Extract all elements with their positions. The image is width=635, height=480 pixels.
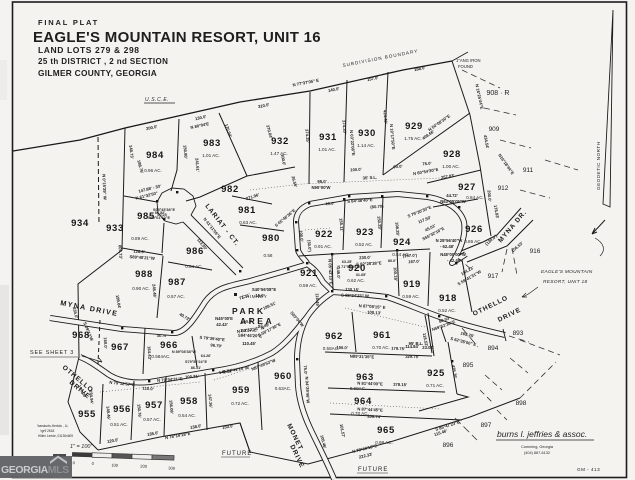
svg-text:N63°05'05"W: N63°05'05"W — [440, 199, 466, 204]
svg-text:S70°01'10"E: S70°01'10"E — [148, 216, 170, 220]
svg-text:0.96 AC.: 0.96 AC. — [144, 168, 162, 173]
svg-text:SEE SHEET 3: SEE SHEET 3 — [30, 350, 74, 356]
svg-text:0.91 AC.: 0.91 AC. — [314, 244, 332, 249]
svg-text:(404) 887-6132: (404) 887-6132 — [524, 451, 550, 455]
svg-text:1.01 AC.: 1.01 AC. — [202, 153, 220, 158]
svg-text:95.0': 95.0' — [317, 179, 326, 184]
svg-text:0.54 AC.: 0.54 AC. — [178, 413, 196, 418]
svg-text:0.52 AC.: 0.52 AC. — [438, 308, 456, 313]
svg-text:200: 200 — [140, 463, 148, 468]
svg-text:929: 929 — [405, 121, 423, 132]
svg-text:0.63 AC.: 0.63 AC. — [239, 220, 257, 225]
svg-text:933: 933 — [106, 223, 124, 234]
svg-text:EAGLE'S MOUNTAIN RESORT, UNIT: EAGLE'S MOUNTAIN RESORT, UNIT 16 — [33, 29, 321, 46]
svg-text:200.0': 200.0' — [487, 190, 493, 202]
svg-text:36.79': 36.79' — [157, 334, 168, 338]
svg-text:0.89 AC.: 0.89 AC. — [131, 236, 149, 241]
svg-text:0.54 AC.: 0.54 AC. — [185, 264, 203, 269]
svg-text:0.57 AC.: 0.57 AC. — [143, 417, 161, 422]
svg-text:0.57 AC.: 0.57 AC. — [167, 294, 185, 299]
svg-text:PARK: PARK — [232, 306, 265, 316]
svg-text:919: 919 — [403, 279, 421, 290]
svg-text:100.19': 100.19' — [393, 267, 399, 281]
svg-text:893: 893 — [513, 330, 524, 337]
svg-text:0.98 AC.: 0.98 AC. — [375, 440, 393, 445]
svg-text:908 · R: 908 · R — [487, 90, 510, 97]
svg-text:RESORT, UNIT 18: RESORT, UNIT 18 — [543, 279, 588, 285]
svg-text:960: 960 — [274, 371, 292, 382]
svg-text:965: 965 — [377, 425, 395, 436]
svg-text:0.72 AC.: 0.72 AC. — [231, 401, 249, 406]
svg-text:100.0': 100.0' — [299, 230, 305, 242]
svg-text:N 28°56'40"W: N 28°56'40"W — [436, 238, 463, 243]
svg-text:FOUND: FOUND — [458, 64, 473, 69]
svg-text:932: 932 — [271, 136, 289, 147]
svg-text:329.75': 329.75' — [405, 354, 419, 359]
svg-text:930: 930 — [358, 128, 376, 139]
svg-text:N90°00'W: N90°00'W — [312, 185, 331, 190]
svg-text:56.52': 56.52' — [155, 211, 166, 215]
svg-text:'rgr9 2618: 'rgr9 2618 — [40, 429, 54, 433]
svg-text:0.59 AC.: 0.59 AC. — [299, 283, 317, 288]
svg-text:0.71 AC.: 0.71 AC. — [426, 383, 444, 388]
svg-text:957: 957 — [145, 400, 163, 411]
svg-text:75.0': 75.0' — [422, 161, 431, 167]
svg-text:986: 986 — [186, 246, 204, 257]
svg-text:959: 959 — [232, 385, 250, 396]
svg-text:86.51': 86.51' — [191, 366, 202, 370]
svg-text:927: 927 — [458, 182, 476, 193]
svg-text:980: 980 — [262, 233, 280, 244]
svg-text:955: 955 — [78, 409, 96, 420]
svg-text:90.0': 90.0' — [393, 164, 402, 170]
svg-text:GEODETIC NORTH: GEODETIC NORTH — [596, 141, 601, 190]
svg-text:42.43': 42.43' — [216, 322, 227, 327]
svg-text:924: 924 — [393, 237, 411, 248]
svg-text:1" = 100': 1" = 100' — [70, 444, 92, 450]
svg-text:N 89°08'38"W: N 89°08'38"W — [172, 350, 197, 354]
svg-text:S84°46'20"E: S84°46'20"E — [238, 333, 263, 339]
svg-text:0.59 AC.: 0.59 AC. — [402, 294, 420, 299]
svg-text:922: 922 — [315, 229, 333, 240]
svg-text:0.86 AC.: 0.86 AC. — [464, 239, 482, 244]
svg-text:917: 917 — [488, 273, 499, 280]
svg-text:918: 918 — [439, 293, 457, 304]
svg-text:898: 898 — [516, 400, 527, 407]
svg-text:911: 911 — [523, 167, 534, 174]
svg-text:80.0': 80.0' — [388, 259, 396, 263]
svg-text:100: 100 — [111, 462, 119, 467]
svg-text:0.84 AC.: 0.84 AC. — [466, 195, 484, 200]
svg-text:REAL ESTATE SERVICES: REAL ESTATE SERVICES — [10, 475, 53, 479]
svg-text:1.14 AC.: 1.14 AC. — [357, 143, 375, 148]
svg-text:378.15': 378.15' — [393, 382, 407, 387]
svg-text:909: 909 — [489, 126, 500, 133]
svg-text:N89°21'35"E: N89°21'35"E — [350, 354, 375, 360]
svg-text:897: 897 — [481, 422, 492, 429]
svg-text:958: 958 — [180, 396, 198, 407]
svg-text:916: 916 — [530, 248, 541, 255]
svg-text:1"ANG IRON: 1"ANG IRON — [456, 58, 481, 63]
svg-text:GM - 413: GM - 413 — [577, 467, 600, 472]
svg-text:982: 982 — [221, 184, 239, 195]
svg-text:895: 895 — [463, 362, 474, 369]
svg-text:31.65': 31.65' — [356, 273, 367, 277]
svg-text:984: 984 — [146, 150, 164, 161]
svg-text:64.26': 64.26' — [201, 354, 212, 358]
svg-text:925: 925 — [427, 368, 445, 379]
svg-text:(80.70): (80.70) — [370, 204, 384, 210]
svg-text:Hillen Leede, 01130x609: Hillen Leede, 01130x609 — [38, 434, 73, 438]
svg-text:160.0': 160.0' — [103, 337, 109, 349]
svg-text:912: 912 — [498, 185, 509, 192]
svg-text:896: 896 — [443, 442, 454, 449]
svg-text:75.0': 75.0' — [303, 365, 308, 374]
svg-text:987: 987 — [168, 277, 186, 288]
svg-text:100.13': 100.13' — [367, 310, 381, 316]
svg-text:95' B.L.: 95' B.L. — [409, 341, 424, 346]
svg-text:N48°00'00"W: N48°00'00"W — [440, 252, 466, 257]
svg-text:605.73': 605.73' — [118, 245, 124, 259]
svg-text:S79°52'24"E: S79°52'24"E — [185, 360, 207, 364]
svg-text:981: 981 — [238, 205, 256, 216]
svg-text:116.46': 116.46' — [315, 293, 321, 307]
svg-text:1.01 AC.: 1.01 AC. — [318, 147, 336, 152]
svg-text:130.15': 130.15' — [345, 287, 359, 292]
svg-text:923: 923 — [356, 227, 374, 238]
svg-text:FINAL PLAT: FINAL PLAT — [38, 18, 99, 27]
svg-text:S40°56'08"E: S40°56'08"E — [252, 287, 276, 292]
svg-text:983: 983 — [203, 138, 221, 149]
svg-text:1.00 AC.: 1.00 AC. — [442, 164, 460, 169]
svg-text:S 88°24'23" W: S 88°24'23" W — [341, 293, 369, 299]
svg-text:110.45': 110.45' — [242, 341, 256, 346]
svg-text:LAND LOTS 279 & 298: LAND LOTS 279 & 298 — [38, 45, 140, 55]
svg-text:N 71°55'55"E: N 71°55'55"E — [337, 265, 361, 269]
svg-text:0.90 AC.: 0.90 AC. — [132, 286, 150, 291]
svg-text:N 81°44'00"E: N 81°44'00"E — [357, 381, 383, 387]
svg-text:Cumming, Georgia: Cumming, Georgia — [521, 445, 554, 449]
svg-text:0.58: 0.58 — [264, 253, 273, 258]
svg-text:44.72': 44.72' — [446, 193, 457, 198]
svg-text:0.70 AC.: 0.70 AC. — [372, 345, 390, 350]
svg-text:0.62 AC.: 0.62 AC. — [347, 278, 365, 283]
svg-text:FUTURE: FUTURE — [358, 467, 388, 473]
svg-text:GILMER COUNTY, GEORGIA: GILMER COUNTY, GEORGIA — [38, 68, 157, 78]
svg-text:0.584AC.: 0.584AC. — [151, 354, 170, 359]
svg-text:150.0': 150.0' — [336, 345, 348, 350]
svg-text:0.51 AC.: 0.51 AC. — [110, 422, 128, 427]
svg-text:928: 928 — [443, 149, 461, 160]
svg-text:0.63AC.: 0.63AC. — [275, 386, 292, 391]
svg-text:63.25': 63.25' — [342, 260, 353, 264]
svg-text:U.S.C.E.: U.S.C.E. — [145, 97, 169, 103]
svg-text:934: 934 — [71, 218, 89, 229]
svg-text:burns l. jeffries & assoc.: burns l. jeffries & assoc. — [497, 429, 587, 439]
svg-text:961: 961 — [373, 330, 391, 341]
svg-text:926: 926 — [465, 224, 483, 235]
svg-text:931: 931 — [319, 132, 337, 143]
svg-text:15.0': 15.0' — [255, 293, 264, 298]
svg-text:1.75 AC.: 1.75 AC. — [404, 136, 422, 141]
svg-text:100.0': 100.0' — [350, 167, 362, 173]
svg-text:300: 300 — [168, 465, 176, 470]
svg-text:956: 956 — [113, 404, 131, 415]
svg-text:967: 967 — [111, 342, 129, 353]
svg-text:100.21': 100.21' — [185, 374, 199, 380]
svg-text:921: 921 — [300, 268, 318, 279]
svg-text:179.75': 179.75' — [391, 346, 405, 351]
svg-text:0.69AC.: 0.69AC. — [350, 386, 367, 391]
svg-text:988: 988 — [135, 269, 153, 280]
svg-text:25 th DISTRICT , 2 nd SECTION: 25 th DISTRICT , 2 nd SECTION — [38, 57, 168, 66]
svg-text:40.0': 40.0' — [325, 201, 334, 207]
svg-text:230.0': 230.0' — [359, 255, 371, 261]
svg-text:35' S.L.: 35' S.L. — [362, 175, 377, 181]
svg-text:N45°00'E: N45°00'E — [215, 316, 233, 321]
svg-text:0.52 AC.: 0.52 AC. — [355, 242, 373, 247]
svg-text:- 42.49': - 42.49' — [447, 258, 461, 263]
svg-text:167.0': 167.0' — [408, 259, 420, 265]
svg-text:(157.0'): (157.0') — [403, 253, 418, 259]
svg-text:EAGLE'S MOUNTAIN: EAGLE'S MOUNTAIN — [541, 269, 593, 275]
svg-text:164.43': 164.43' — [147, 346, 153, 360]
svg-text:110.0': 110.0' — [142, 386, 154, 392]
svg-text:359.74': 359.74' — [367, 414, 381, 420]
svg-text:962: 962 — [325, 331, 343, 342]
svg-text:FUTURE: FUTURE — [222, 451, 252, 457]
svg-text:- 62.48': - 62.48' — [440, 244, 454, 249]
svg-text:'barskurts-Hertolu , LL: 'barskurts-Hertolu , LL — [37, 424, 68, 428]
svg-text:894: 894 — [488, 345, 499, 352]
